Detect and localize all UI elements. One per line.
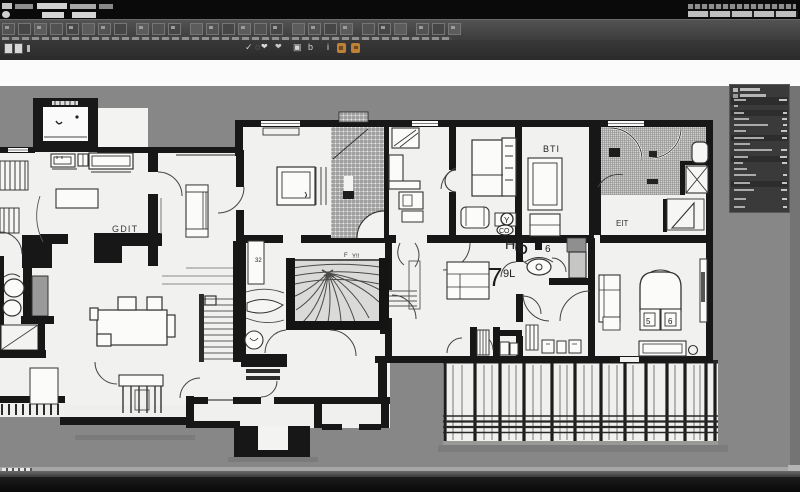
svg-text:GDIT: GDIT [112, 224, 138, 234]
svg-text:CO: CO [499, 228, 510, 235]
svg-text:6: 6 [545, 244, 551, 255]
svg-text:6: 6 [517, 237, 528, 259]
svg-text:EIT: EIT [616, 219, 629, 228]
svg-text:Y: Y [504, 216, 510, 225]
svg-text:5: 5 [646, 317, 651, 326]
svg-text:9L: 9L [503, 268, 515, 280]
svg-text:H: H [505, 236, 515, 252]
svg-text:BTI: BTI [543, 144, 560, 154]
svg-text:32: 32 [255, 258, 262, 264]
svg-text:7: 7 [488, 262, 502, 292]
svg-text:F: F [344, 253, 348, 259]
svg-text:6: 6 [668, 317, 673, 326]
svg-text:Y!!: Y!! [352, 254, 360, 260]
